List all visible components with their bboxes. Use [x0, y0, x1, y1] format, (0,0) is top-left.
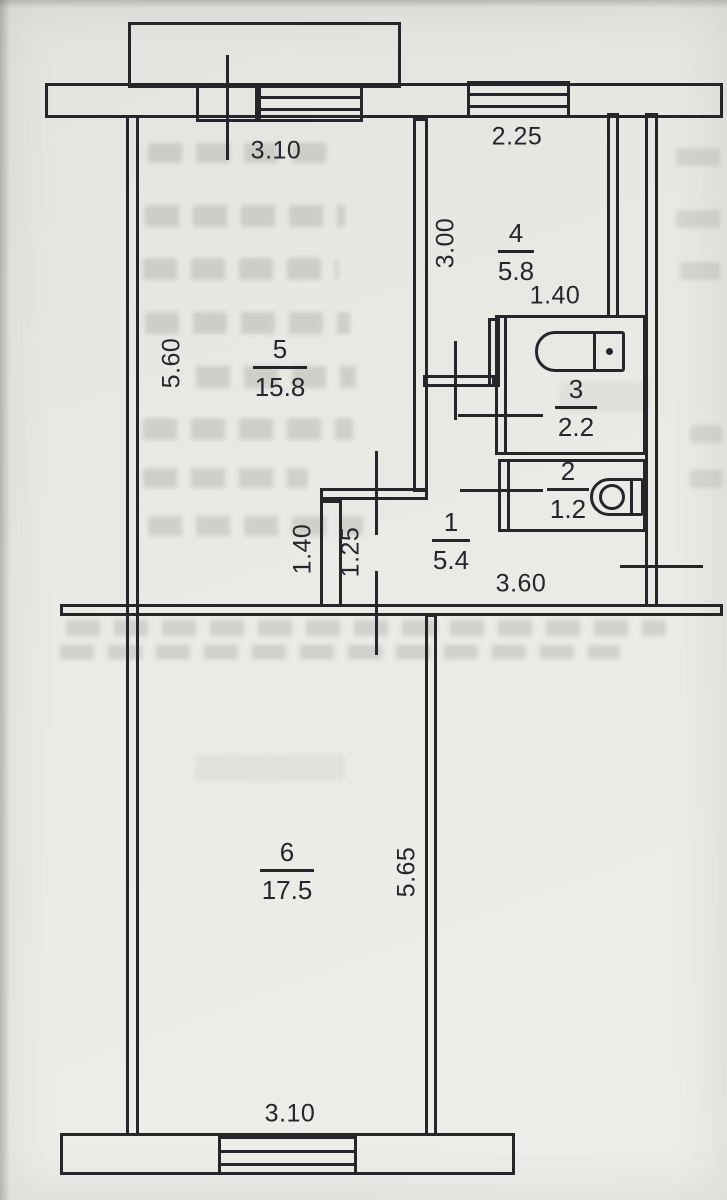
window-glazing-line: [261, 96, 360, 99]
door-tick-toilet: [460, 489, 543, 492]
paper-edge-shadow-left: [0, 0, 10, 1200]
door-tick-room6-hall: [375, 571, 378, 655]
room-4-label: 4 5.8: [498, 220, 534, 284]
dim-room6-height: 5.65: [395, 847, 420, 898]
dim-room4-width: 2.25: [492, 125, 543, 150]
door-tick-room5-hall: [375, 451, 378, 535]
bathtub-icon: [535, 331, 625, 372]
room-1-label: 1 5.4: [432, 509, 470, 573]
room-3-fraction-bar: [555, 406, 597, 409]
bleedthrough-artifact: [690, 470, 722, 488]
room-5-label: 5 15.8: [253, 336, 307, 400]
dim-hall-left: 1.40: [291, 524, 316, 575]
wall-left: [126, 115, 139, 1136]
bleedthrough-artifact: [690, 425, 722, 443]
room-4-fraction-bar: [498, 250, 534, 253]
room-5-fraction-bar: [253, 366, 307, 369]
bleedthrough-artifact: [680, 262, 720, 280]
wall-kitchen-right: [607, 113, 619, 318]
room-4-number: 4: [498, 220, 534, 246]
room-3-label: 3 2.2: [555, 376, 597, 440]
room-4-area: 5.8: [498, 258, 534, 284]
floor-plan-photo: 1 5.4 2 1.2 3 2.2 4 5.8 5 15.8 6 17.5 3.…: [0, 0, 727, 1200]
wall-room3-left-inner: [504, 315, 507, 455]
room-2-fraction-bar: [547, 488, 589, 491]
room-5-area: 15.8: [253, 374, 307, 400]
wall-room6-right: [425, 614, 437, 1136]
room-1-fraction-bar: [432, 539, 470, 542]
bleedthrough-artifact: [143, 418, 353, 440]
toilet-icon: [590, 478, 644, 516]
room-2-number: 2: [547, 458, 589, 484]
bleedthrough-artifact: [676, 148, 720, 166]
room-1-area: 5.4: [432, 547, 470, 573]
dim-room4-height: 3.00: [434, 218, 459, 269]
wall-middle: [60, 604, 723, 616]
window-bottom-room6: [218, 1136, 357, 1175]
room-2-label: 2 1.2: [547, 458, 589, 522]
wall-exterior-top: [45, 83, 723, 118]
window-glazing-line: [221, 1163, 354, 1166]
bleedthrough-artifact: [143, 258, 338, 280]
wall-hall-step: [320, 488, 428, 500]
room-6-fraction-bar: [260, 869, 314, 872]
bleedthrough-artifact: [143, 468, 308, 488]
wall-kitchen-bottom: [423, 375, 495, 387]
toilet-tank-line: [630, 481, 633, 513]
dim-room6-width: 3.10: [265, 1102, 316, 1127]
paper-edge-shadow-top: [0, 0, 727, 8]
bleedthrough-artifact: [195, 755, 345, 781]
dim-room5-height: 5.60: [160, 338, 185, 389]
room-3-number: 3: [555, 376, 597, 402]
bleedthrough-artifact: [148, 143, 333, 163]
room-2-area: 1.2: [547, 496, 589, 522]
balcony-outline: [128, 22, 401, 88]
door-tick-entrance: [620, 565, 703, 568]
bleedthrough-artifact: [145, 205, 345, 227]
room-5-number: 5: [253, 336, 307, 362]
wall-exterior-right: [645, 113, 658, 607]
room-3-area: 2.2: [555, 414, 597, 440]
room-1-number: 1: [432, 509, 470, 535]
window-glazing-line: [470, 93, 567, 96]
dim-hall-width: 3.60: [496, 572, 547, 597]
dim-room3-width: 1.40: [530, 284, 581, 309]
bleedthrough-artifact: [66, 620, 666, 636]
dim-room5-width: 3.10: [251, 139, 302, 164]
bleedthrough-artifact: [145, 312, 350, 334]
room-6-area: 17.5: [260, 877, 314, 903]
door-tick-balcony: [226, 55, 229, 160]
wall-room2-left-inner: [507, 459, 510, 532]
door-tick-kitchen: [454, 341, 457, 420]
window-glazing-line: [470, 105, 567, 108]
dim-hall-notch: 1.25: [339, 527, 364, 578]
bathtub-divider-line: [593, 334, 596, 369]
window-top-room4: [467, 81, 570, 118]
window-glazing-line: [221, 1150, 354, 1153]
bleedthrough-artifact: [676, 210, 720, 228]
bathtub-drain-dot: [606, 348, 613, 355]
bleedthrough-artifact: [60, 645, 620, 659]
room-6-number: 6: [260, 839, 314, 865]
toilet-bowl-circle: [599, 484, 625, 510]
window-glazing-line: [261, 108, 360, 111]
door-tick-bathroom: [458, 414, 543, 417]
wall-room5-room4-divider: [413, 118, 428, 492]
window-top-room5: [258, 83, 363, 122]
room-6-label: 6 17.5: [260, 839, 314, 903]
